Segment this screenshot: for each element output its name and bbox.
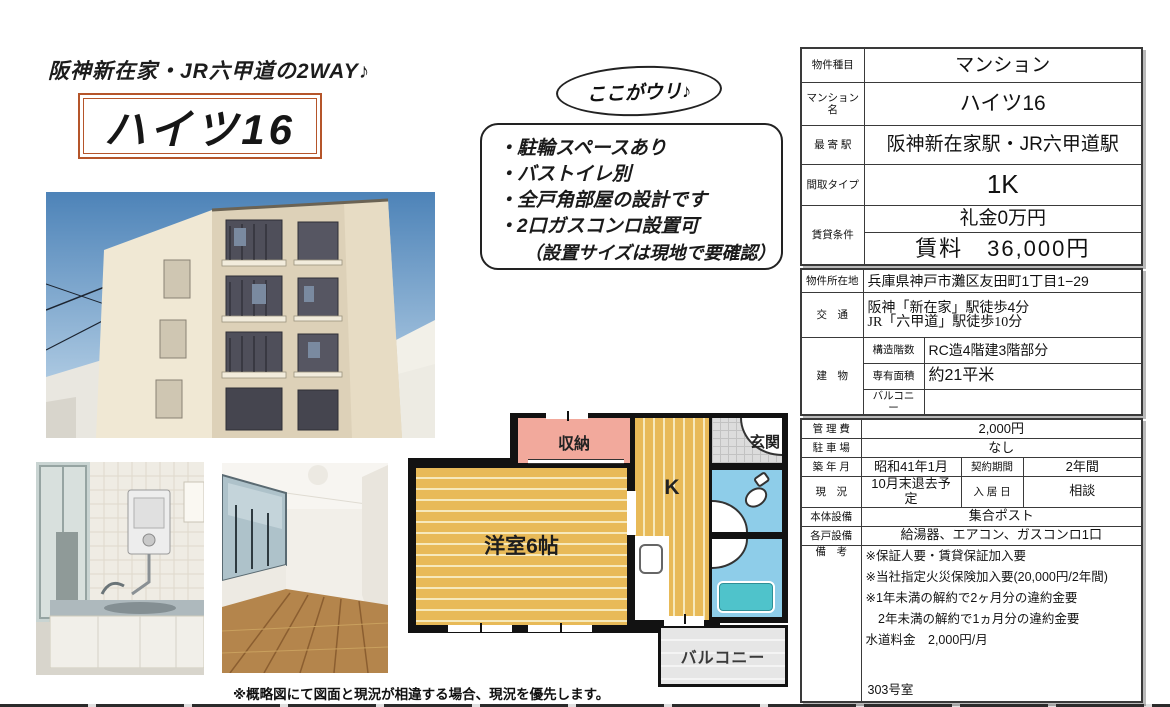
kitchen-balcony-opening <box>664 616 704 626</box>
disclaimer-note: ※概略図にて図面と現況が相違する場合、現況を優先します。 <box>233 683 609 703</box>
rental-flyer: 阪神新在家・JR六甲道の2WAY♪ ハイツ16 <box>0 0 1170 707</box>
balcony-row-label: バルコニー <box>863 390 924 416</box>
building-label: 建 物 <box>801 338 863 416</box>
built-date-label: 築 年 月 <box>801 458 861 477</box>
storage-sliding-door <box>528 459 624 464</box>
mgmt-fee-value: 2,000円 <box>861 419 1142 439</box>
layout-type-value: 1K <box>864 165 1142 206</box>
plan-toilet-room <box>712 470 782 532</box>
building-photo <box>46 192 435 438</box>
room-window-opening <box>448 625 512 632</box>
note-line: 水道料金 2,000円/月 <box>866 630 1138 651</box>
property-type-label: 物件種目 <box>801 48 864 83</box>
floor-plan: 収納 洋室6帖 K 玄関 バルコニー <box>408 413 790 693</box>
catch-copy: 阪神新在家・JR六甲道の2WAY♪ <box>48 55 408 85</box>
room-number: 303号室 <box>868 683 914 697</box>
note-line: ※1年未満の解約で2ヶ月分の違約金要 <box>866 588 1138 609</box>
western-room-label: 洋室6帖 <box>416 530 627 560</box>
mansion-name-value: ハイツ16 <box>864 83 1142 126</box>
note-line: ※保証人要・賃貸保証加入要 <box>866 546 1138 567</box>
kitchen-label: K <box>635 476 709 500</box>
property-title-box: ハイツ16 <box>78 93 322 159</box>
parking-value: なし <box>861 439 1142 458</box>
building-equipment-value: 集合ポスト <box>861 507 1142 526</box>
balcony-row-value <box>924 390 1142 416</box>
storage-label: 収納 <box>518 430 630 454</box>
notes-label: 備 考 <box>801 545 861 702</box>
contract-term-value: 2年間 <box>1023 458 1142 477</box>
details-table: 管 理 費 2,000円 駐 車 場 なし 築 年 月 昭和41年1月 契約期間… <box>800 418 1143 703</box>
unit-equipment-label: 各戸設備 <box>801 526 861 545</box>
balcony-label: バルコニー <box>681 644 766 668</box>
building-equipment-label: 本体設備 <box>801 507 861 526</box>
summary-table: 物件種目 マンション マンション名 ハイツ16 最 寄 駅 阪神新在家駅・JR六… <box>800 47 1143 266</box>
nearest-station-label: 最 寄 駅 <box>801 126 864 165</box>
room-window-opening <box>528 625 592 632</box>
move-in-label: 入 居 日 <box>961 477 1023 508</box>
storage-window-opening <box>546 413 588 419</box>
selling-points-box: ・駐輪スペースあり ・バストイレ別 ・全戸角部屋の設計です ・2口ガスコンロ設置… <box>480 123 783 270</box>
selling-point-item: ・バストイレ別 <box>498 162 773 188</box>
access-line-1: 阪神「新在家」駅徒歩4分 <box>868 299 1138 315</box>
rent-value: 賃料 36,000円 <box>864 233 1142 266</box>
kitchen-photo <box>36 462 204 675</box>
kitchen-sink <box>639 544 663 574</box>
address-value: 兵庫県神戸市灘区友田町1丁目1−29 <box>863 269 1142 293</box>
bathtub-icon <box>717 581 775 613</box>
floor-area-value: 約21平米 <box>924 364 1142 390</box>
move-in-value: 相談 <box>1023 477 1142 508</box>
nearest-station-value: 阪神新在家駅・JR六甲道駅 <box>864 126 1142 165</box>
property-title-inner-border: ハイツ16 <box>83 98 317 154</box>
room-kitchen-door-opening <box>627 491 636 535</box>
notes-cell: ※保証人要・賃貸保証加入要 ※当社指定火災保険加入要(20,000円/2年間) … <box>861 545 1142 702</box>
selling-point-bubble: ここがウリ♪ <box>555 63 723 119</box>
plan-kitchen: K <box>635 418 709 620</box>
toilet-door-arc <box>712 500 748 532</box>
layout-type-label: 間取タイプ <box>801 165 864 206</box>
current-status-label: 現 況 <box>801 477 861 508</box>
key-money-value: 礼金0万円 <box>864 206 1142 233</box>
location-table: 物件所在地 兵庫県神戸市灘区友田町1丁目1−29 交 通 阪神「新在家」駅徒歩4… <box>800 268 1143 416</box>
plan-storage-room: 収納 <box>518 418 630 463</box>
parking-label: 駐 車 場 <box>801 439 861 458</box>
floor-area-label: 専有面積 <box>863 364 924 390</box>
access-label: 交 通 <box>801 293 863 338</box>
access-line-2: JR「六甲道」駅徒歩10分 <box>868 315 1138 331</box>
built-date-value: 昭和41年1月 <box>861 458 961 477</box>
kitchen-counter <box>635 536 669 620</box>
mansion-name-label: マンション名 <box>801 83 864 126</box>
address-label: 物件所在地 <box>801 269 863 293</box>
plan-bath-room <box>712 539 782 617</box>
note-line: ※当社指定火災保険加入要(20,000円/2年間) <box>866 567 1138 588</box>
note-line: 2年未満の解約で1ヵ月分の違約金要 <box>866 609 1138 630</box>
selling-point-item: ・全戸角部屋の設計です <box>498 188 773 214</box>
room-photo <box>222 463 388 673</box>
structure-value: RC造4階建3階部分 <box>924 338 1142 364</box>
toilet-icon <box>736 471 781 515</box>
bath-door-arc <box>712 539 748 569</box>
selling-point-item: ・駐輪スペースあり <box>498 136 773 162</box>
selling-point-item: （設置サイズは現地で要確認） <box>498 240 773 266</box>
property-title: ハイツ16 <box>104 96 296 157</box>
plan-balcony: バルコニー <box>658 625 788 687</box>
current-status-value: 10月末退去予定 <box>861 477 961 508</box>
contract-term-label: 契約期間 <box>961 458 1023 477</box>
entrance-label: 玄関 <box>750 431 780 452</box>
unit-equipment-value: 給湯器、エアコン、ガスコンロ1口 <box>861 526 1142 545</box>
mgmt-fee-label: 管 理 費 <box>801 419 861 439</box>
structure-label: 構造階数 <box>863 338 924 364</box>
lease-terms-label: 賃貸条件 <box>801 206 864 266</box>
selling-point-item: ・2口ガスコンロ設置可 <box>498 214 773 240</box>
property-type-value: マンション <box>864 48 1142 83</box>
plan-entrance: 玄関 <box>712 418 782 463</box>
plan-western-room: 洋室6帖 <box>416 468 627 625</box>
